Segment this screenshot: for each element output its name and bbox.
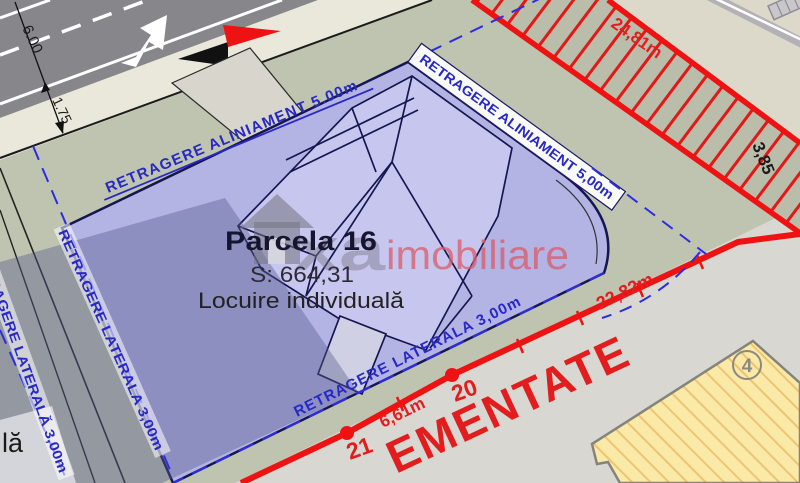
building-number: 4	[742, 356, 753, 377]
parcel-title: Parcela 16	[225, 226, 377, 256]
watermark-accent-text: imobiliare	[386, 232, 569, 278]
neighbor-label-fragment: lă	[2, 428, 24, 458]
site-plan-map: 6.00 1.75 lă 4	[0, 0, 800, 483]
parcel-use: Locuire individuală	[198, 288, 405, 313]
parcel-area: S: 664,31	[250, 262, 354, 287]
cadastral-plan-canvas: 6.00 1.75 lă 4	[0, 0, 800, 483]
